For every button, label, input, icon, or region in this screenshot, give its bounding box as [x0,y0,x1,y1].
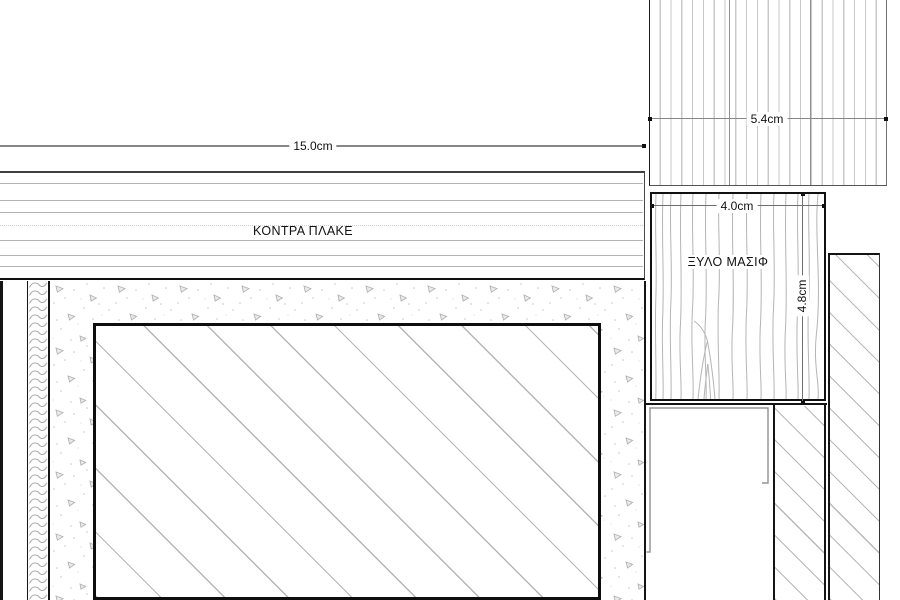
plywood-label: ΚΟΝΤΡΑ ΠΛΑΚΕ [253,224,353,238]
frame-line-vertical [824,403,826,600]
panel-dark-stripe [729,0,730,185]
dimension-label-5-4cm: 5.4cm [747,112,788,126]
ply-lamination-line [0,240,643,241]
wall-line-left-outer [0,281,3,600]
dimension-tick [650,204,654,208]
dimension-label-15cm: 15.0cm [289,139,336,153]
dimension-tick [822,204,826,208]
hatched-frame-section [93,323,601,600]
hatched-column-right [828,253,880,600]
dimension-tick [884,117,888,121]
dimension-tick [648,117,652,121]
plywood-edge-panel [649,0,887,186]
ply-lamination-line [0,183,643,184]
ply-lamination-line [0,200,643,201]
frame-profile-outline [644,405,774,557]
hatched-column-inner [775,406,825,600]
solid-wood-label: ΞΥΛΟ ΜΑΣΙΦ [685,255,772,269]
panel-dark-stripe [810,0,811,185]
dimension-label-4-8cm: 4.8cm [795,276,809,317]
insulation-strip [28,281,48,600]
dimension-label-4-0cm: 4.0cm [717,199,758,213]
dimension-tick [801,192,805,196]
wall-line [48,281,50,600]
ply-lamination-line [0,255,643,256]
ply-lamination-line [0,266,643,267]
construction-detail-drawing: 15.0cm ΚΟΝΤΡΑ ΠΛΑΚΕ 5.4cm [0,0,900,600]
ply-lamination-line [0,212,643,213]
dimension-tick [642,144,646,148]
